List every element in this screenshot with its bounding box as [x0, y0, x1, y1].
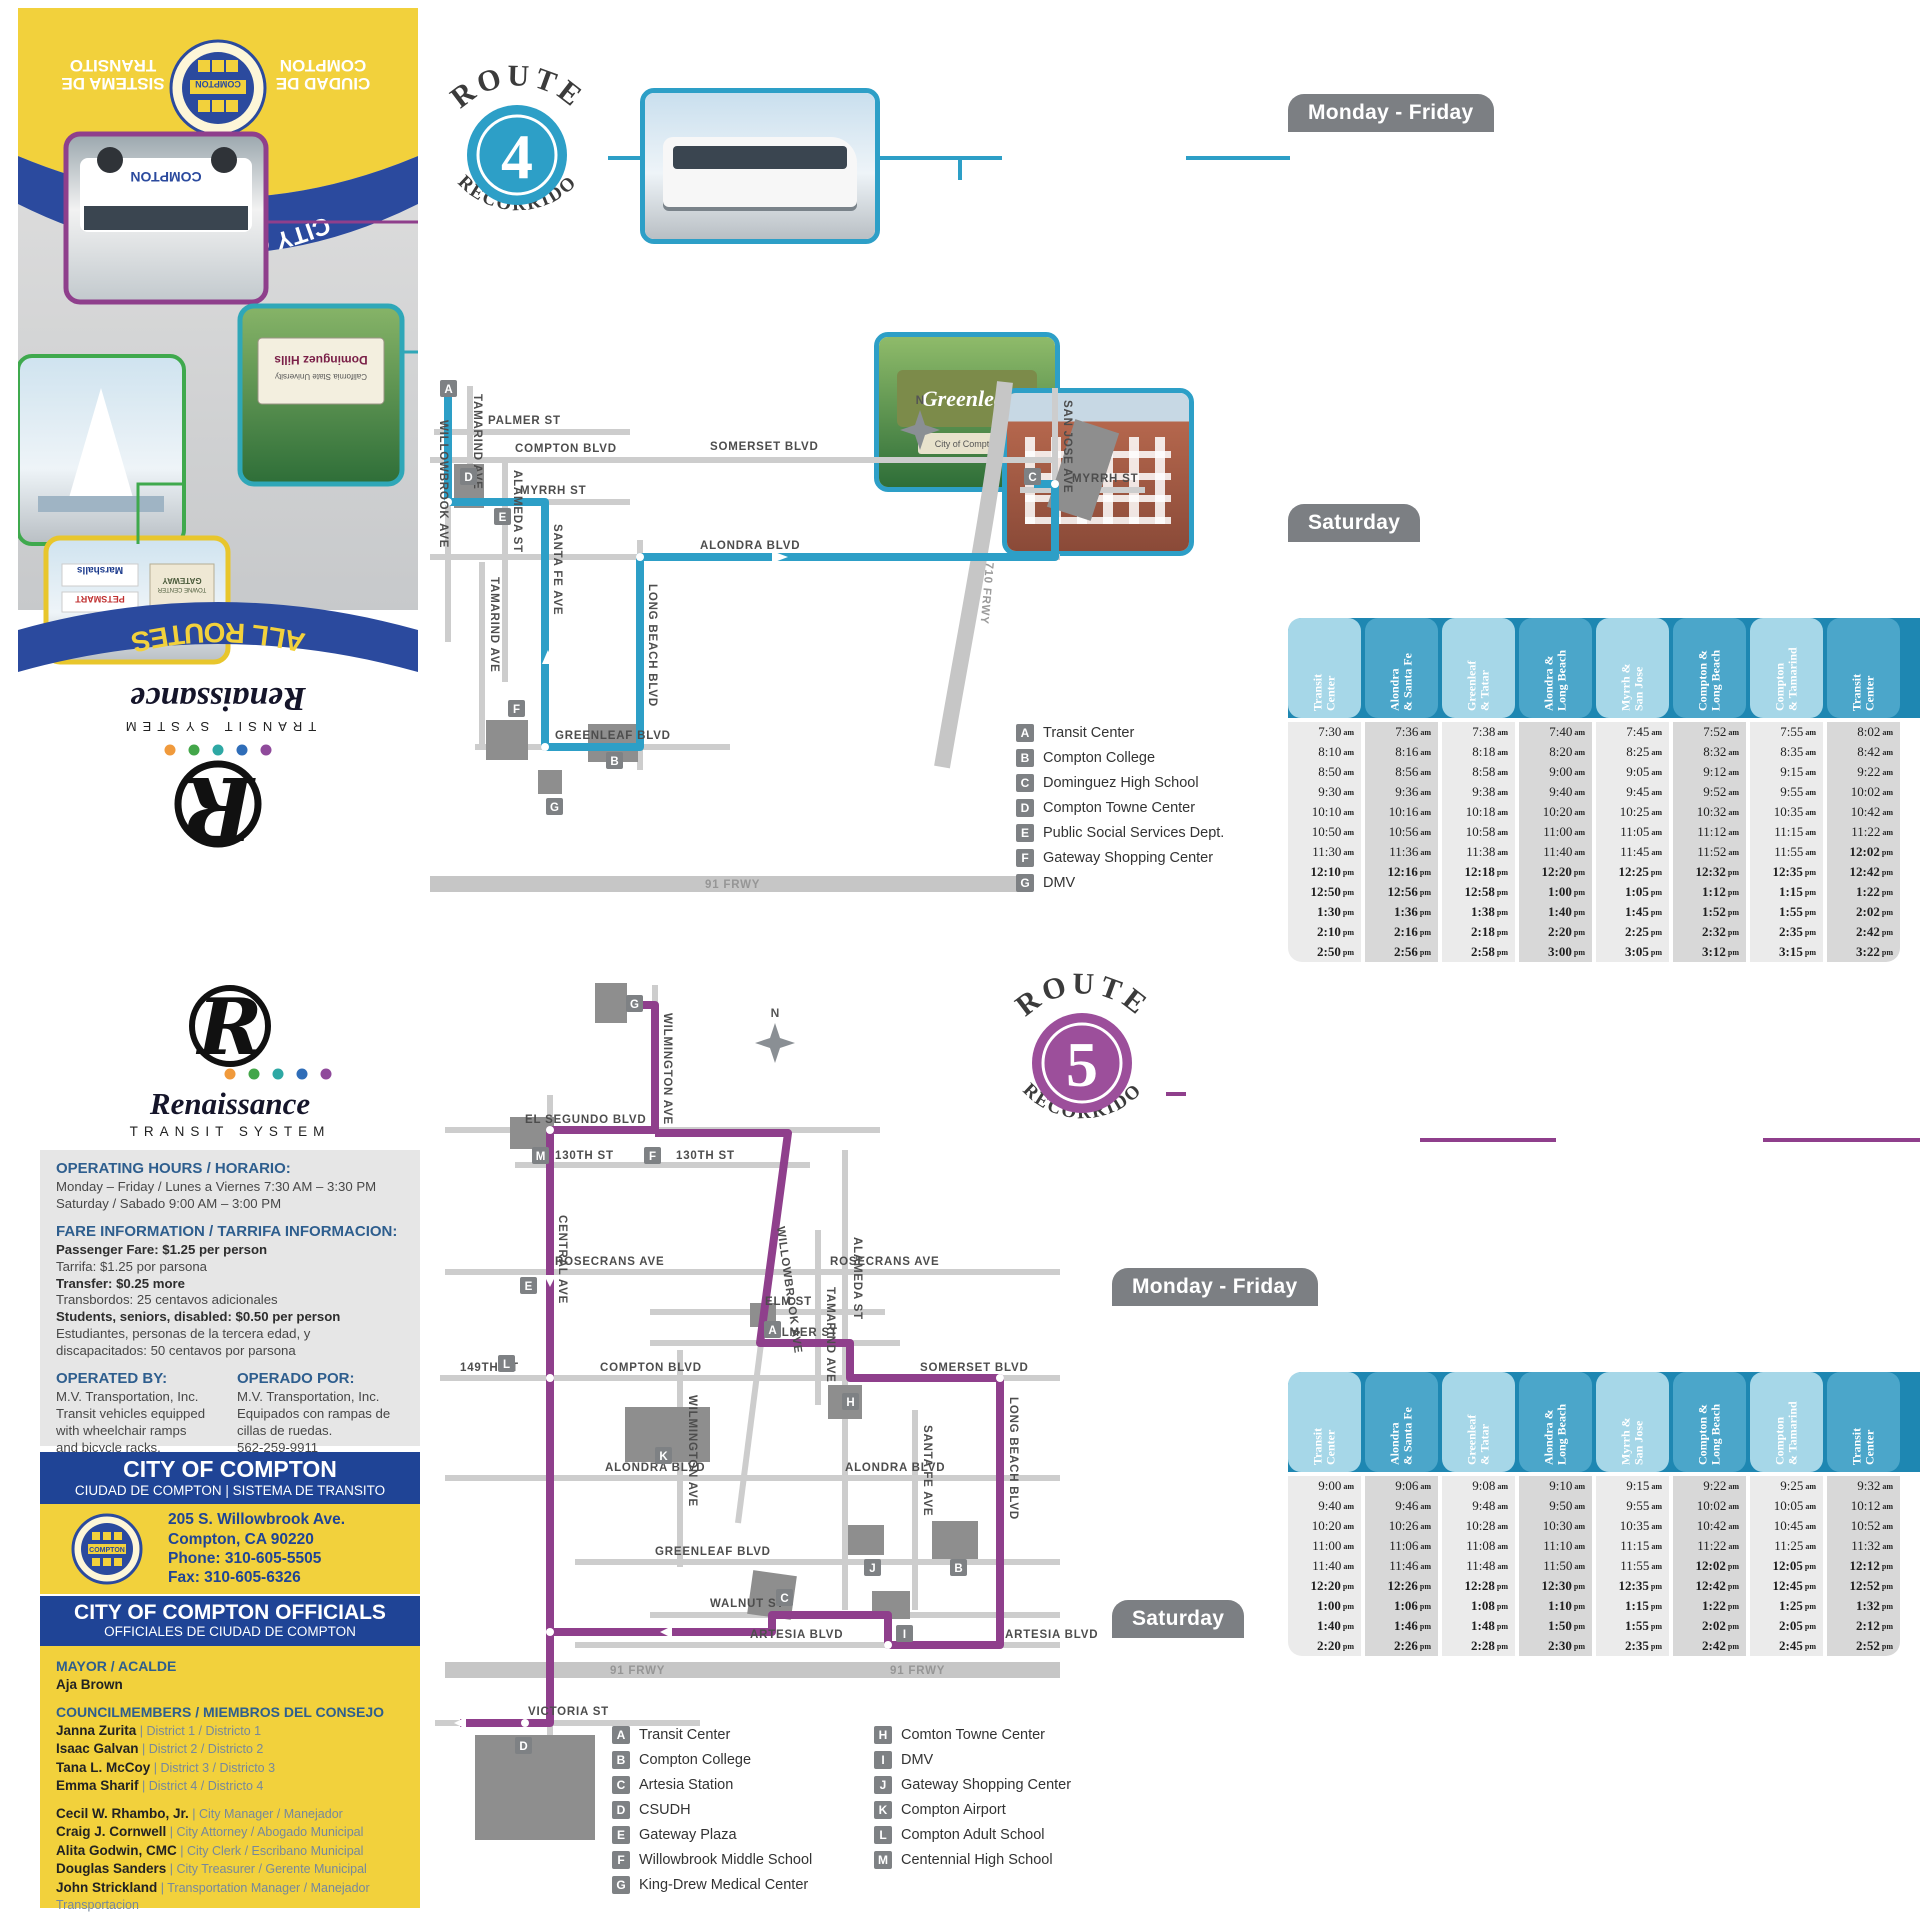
timetable-cell: 10:26am	[1365, 1516, 1438, 1536]
timetable-cell: 1:36pm	[1365, 902, 1438, 922]
time-suffix: pm	[1343, 908, 1354, 917]
time-suffix: am	[1497, 848, 1508, 857]
timetable-cell: 9:36am	[1365, 782, 1438, 802]
timetable-cell: 9:52am	[1673, 782, 1746, 802]
cover-gateway-sign2: TOWNE CENTER	[157, 586, 206, 592]
time-suffix: am	[1805, 828, 1816, 837]
council-list: Janna Zurita | District 1 / Districto 1I…	[56, 1722, 404, 1795]
street-label: SOMERSET BLVD	[710, 441, 819, 453]
street-label: ROSECRANS AVE	[830, 1256, 939, 1268]
legend-item: EGateway Plaza	[612, 1826, 812, 1844]
time-value: 9:08	[1472, 1478, 1495, 1494]
timetable-cell: 9:06am	[1365, 1476, 1438, 1496]
time-value: 9:36	[1395, 784, 1418, 800]
timetable-cell: 11:40am	[1519, 842, 1592, 862]
marker-letter: C	[780, 1593, 788, 1605]
time-value: 8:02	[1857, 724, 1880, 740]
street-label: GREENLEAF BLVD	[655, 1546, 771, 1558]
time-value: 10:42	[1697, 1518, 1727, 1534]
street-label: COMPTON BLVD	[600, 1362, 702, 1374]
stop-header-label: Greenleaf& Tatar	[1465, 621, 1492, 715]
timetable-cell: 12:45pm	[1750, 1576, 1823, 1596]
legend-item: ATransit Center	[612, 1726, 812, 1744]
time-suffix: pm	[1420, 1602, 1431, 1611]
mayor-title: MAYOR / ACALDE	[56, 1658, 404, 1674]
time-suffix: am	[1882, 748, 1893, 757]
time-suffix: pm	[1343, 948, 1354, 957]
time-suffix: pm	[1805, 1562, 1816, 1571]
time-suffix: am	[1420, 748, 1431, 757]
time-suffix: am	[1497, 828, 1508, 837]
time-value: 2:26	[1394, 1638, 1418, 1654]
street-label: SANTA FE AVE	[551, 524, 563, 615]
timetable-cell: 12:25pm	[1596, 862, 1669, 882]
time-value: 11:10	[1543, 1538, 1572, 1554]
stop-header-label: Alondra &Long Beach	[1542, 1375, 1569, 1469]
time-value: 11:40	[1312, 1558, 1341, 1574]
time-suffix: pm	[1497, 948, 1508, 957]
street-label: LONG BEACH BLVD	[646, 584, 658, 707]
official-entry: Tana L. McCoy | District 3 / Districto 3	[56, 1759, 404, 1777]
officials-box: MAYOR / ACALDE Aja Brown COUNCILMEMBERS …	[40, 1646, 420, 1908]
timetable-column-body: 9:00am9:40am10:20am11:00am11:40am12:20pm…	[1288, 1476, 1361, 1656]
timetable-cell: 8:56am	[1365, 762, 1438, 782]
legend-key: G	[612, 1876, 630, 1894]
cover-seal-text: COMPTON	[195, 79, 241, 89]
time-suffix: am	[1497, 1562, 1508, 1571]
time-value: 8:58	[1472, 764, 1495, 780]
marker-letter: F	[649, 1151, 656, 1163]
info-line: Passenger Fare: $1.25 per person	[56, 1242, 404, 1259]
marker-letter: G	[630, 999, 639, 1011]
timetable-cell: 2:02pm	[1673, 1616, 1746, 1636]
timetable-cell: 11:06am	[1365, 1536, 1438, 1556]
time-suffix: am	[1574, 728, 1585, 737]
marker-letter: E	[499, 512, 507, 524]
timetable-cell: 9:05am	[1596, 762, 1669, 782]
time-suffix: pm	[1728, 948, 1739, 957]
info-line: Transbordos: 25 centavos adicionales	[56, 1292, 404, 1309]
street-label: VICTORIA ST	[528, 1706, 609, 1718]
timetable-cell: 12:32pm	[1673, 862, 1746, 882]
route5-saturday-tab-label: Saturday	[1112, 1600, 1244, 1638]
legend-item: GKing-Drew Medical Center	[612, 1876, 812, 1894]
time-value: 12:25	[1619, 864, 1649, 880]
time-suffix: pm	[1420, 868, 1431, 877]
timetable-cell: 10:16am	[1365, 802, 1438, 822]
time-value: 7:55	[1780, 724, 1803, 740]
time-suffix: am	[1574, 1522, 1585, 1531]
timetable-cell: 10:18am	[1442, 802, 1515, 822]
time-value: 2:20	[1548, 924, 1572, 940]
time-suffix: pm	[1651, 1602, 1662, 1611]
timetable-cell: 1:22pm	[1827, 882, 1900, 902]
timetable-cell: 1:40pm	[1288, 1616, 1361, 1636]
time-suffix: am	[1497, 1522, 1508, 1531]
time-suffix: am	[1882, 788, 1893, 797]
cover-photo-fountain	[18, 356, 184, 544]
time-suffix: pm	[1805, 928, 1816, 937]
time-suffix: am	[1882, 808, 1893, 817]
stop-header-label: Myrrh &San Jose	[1619, 1375, 1646, 1469]
time-value: 2:02	[1856, 904, 1880, 920]
time-value: 12:02	[1850, 844, 1880, 860]
stop-header-label: Compton& Tamarind	[1773, 1375, 1800, 1469]
time-value: 1:12	[1702, 884, 1726, 900]
address-line: 205 S. Willowbrook Ave.	[168, 1510, 345, 1529]
time-suffix: pm	[1420, 948, 1431, 957]
time-value: 1:15	[1779, 884, 1803, 900]
timetable-column: TransitCenter9:00am9:40am10:20am11:00am1…	[1288, 1372, 1361, 1656]
time-value: 11:22	[1851, 824, 1880, 840]
time-suffix: am	[1651, 1502, 1662, 1511]
time-suffix: am	[1420, 1502, 1431, 1511]
info-line: Students, seniors, disabled: $0.50 per p…	[56, 1309, 404, 1326]
timetable-cell: 12:16pm	[1365, 862, 1438, 882]
stop-header-label: Alondra &Long Beach	[1542, 621, 1569, 715]
time-value: 2:12	[1856, 1618, 1880, 1634]
timetable-column: Compton& Tamarind9:25am10:05am10:45am11:…	[1750, 1372, 1823, 1656]
timetable-cell: 7:40am	[1519, 722, 1592, 742]
time-suffix: am	[1882, 828, 1893, 837]
timetable-cell: 12:35pm	[1596, 1576, 1669, 1596]
legend-label: DMV	[1034, 875, 1075, 891]
time-value: 2:16	[1394, 924, 1418, 940]
marker-letter: K	[659, 1451, 668, 1463]
legend-label: Compton College	[630, 1752, 751, 1768]
timetable-cell: 9:48am	[1442, 1496, 1515, 1516]
legend-label: DMV	[892, 1752, 933, 1768]
timetable-cell: 10:45am	[1750, 1516, 1823, 1536]
timetable-cell: 2:35pm	[1596, 1636, 1669, 1656]
timetable-cell: 12:28pm	[1442, 1576, 1515, 1596]
brand-dot	[249, 1069, 260, 1080]
timetable-cell: 3:12pm	[1673, 942, 1746, 962]
info-line: Tarrifa: $1.25 por parsona	[56, 1259, 404, 1276]
timetable-cell: 11:22am	[1673, 1536, 1746, 1556]
timetable-cell: 2:12pm	[1827, 1616, 1900, 1636]
time-value: 7:40	[1549, 724, 1572, 740]
hours-title: OPERATING HOURS / HORARIO:	[56, 1160, 404, 1177]
time-value: 3:15	[1779, 944, 1803, 960]
time-value: 12:50	[1311, 884, 1341, 900]
stop-header: Compton &Long Beach	[1673, 618, 1746, 718]
time-value: 11:08	[1466, 1538, 1495, 1554]
hours-line2: Saturday / Sabado 9:00 AM – 3:00 PM	[56, 1196, 404, 1213]
route4-saturday-tab: Saturday	[1288, 504, 1420, 542]
time-suffix: pm	[1497, 888, 1508, 897]
official-entry: Emma Sharif | District 4 / Districto 4	[56, 1777, 404, 1795]
timetable-cell: 12:20pm	[1288, 1576, 1361, 1596]
time-suffix: am	[1497, 1542, 1508, 1551]
time-value: 9:25	[1780, 1478, 1803, 1494]
timetable-cell: 10:56am	[1365, 822, 1438, 842]
timetable-cell: 3:00pm	[1519, 942, 1592, 962]
legend-item: DCSUDH	[612, 1801, 812, 1819]
freeway-710	[942, 382, 1005, 767]
official-entry: Alita Godwin, CMC | City Clerk / Escriba…	[56, 1842, 404, 1860]
time-value: 12:52	[1850, 1578, 1880, 1594]
time-value: 10:45	[1774, 1518, 1804, 1534]
timetable-cell: 9:25am	[1750, 1476, 1823, 1496]
time-suffix: pm	[1497, 908, 1508, 917]
time-suffix: pm	[1574, 1602, 1585, 1611]
time-suffix: am	[1805, 768, 1816, 777]
stop-header-label: Compton &Long Beach	[1696, 621, 1723, 715]
time-suffix: am	[1574, 808, 1585, 817]
legend-key: D	[612, 1801, 630, 1819]
timetable-cell: 2:18pm	[1442, 922, 1515, 942]
cover-brand-sub: TRANSIT SYSTEM	[120, 719, 316, 734]
timetable-column-body: 7:36am8:16am8:56am9:36am10:16am10:56am11…	[1365, 722, 1438, 962]
time-value: 2:35	[1625, 1638, 1649, 1654]
street-label: SANTA FE AVE	[921, 1425, 933, 1516]
time-value: 7:30	[1318, 724, 1341, 740]
marker-letter: G	[550, 802, 559, 814]
address-line: Compton, CA 90220	[168, 1530, 345, 1549]
timetable-cell: 11:15am	[1596, 1536, 1669, 1556]
time-suffix: am	[1728, 848, 1739, 857]
timetable-cell: 9:45am	[1596, 782, 1669, 802]
street-label: ROSECRANS AVE	[555, 1256, 664, 1268]
cover-city-line2: COMPTON	[280, 56, 367, 75]
timetable-cell: 12:12pm	[1827, 1556, 1900, 1576]
time-suffix: pm	[1343, 1602, 1354, 1611]
route4-badge-number: 4	[501, 121, 533, 192]
timetable-cell: 7:30am	[1288, 722, 1361, 742]
stop-header: Compton& Tamarind	[1750, 618, 1823, 718]
cover-csudh-sign1: Dominguez Hills	[274, 353, 368, 367]
timetable-cell: 12:42pm	[1827, 862, 1900, 882]
time-value: 11:32	[1851, 1538, 1880, 1554]
time-value: 1:40	[1548, 904, 1572, 920]
timetable-cell: 10:02am	[1827, 782, 1900, 802]
cover-shop2-text: PETSMART	[75, 594, 125, 604]
legend-label: King-Drew Medical Center	[630, 1877, 808, 1893]
time-value: 1:05	[1625, 884, 1649, 900]
time-suffix: am	[1651, 828, 1662, 837]
stop-header-label: TransitCenter	[1311, 621, 1338, 715]
time-suffix: pm	[1805, 888, 1816, 897]
timetable-column-body: 7:55am8:35am9:15am9:55am10:35am11:15am11…	[1750, 722, 1823, 962]
time-suffix: am	[1728, 1522, 1739, 1531]
time-suffix: pm	[1574, 1642, 1585, 1651]
timetable-cell: 1:48pm	[1442, 1616, 1515, 1636]
time-suffix: am	[1497, 788, 1508, 797]
timetable-cell: 2:32pm	[1673, 922, 1746, 942]
time-value: 10:58	[1466, 824, 1496, 840]
marker-letter: L	[503, 1359, 510, 1371]
time-suffix: pm	[1420, 1582, 1431, 1591]
time-value: 9:40	[1318, 1498, 1341, 1514]
timetable-cell: 10:20am	[1288, 1516, 1361, 1536]
time-value: 11:06	[1389, 1538, 1418, 1554]
freeway-label: 91 FRWY	[705, 879, 760, 891]
time-value: 1:22	[1702, 1598, 1726, 1614]
legend-label: Compton Adult School	[892, 1827, 1044, 1843]
timetable-column-body: 9:32am10:12am10:52am11:32am12:12pm12:52p…	[1827, 1476, 1900, 1656]
time-suffix: am	[1651, 748, 1662, 757]
route4-photo-bus	[640, 88, 880, 244]
timetable-cell: 2:35pm	[1750, 922, 1823, 942]
time-value: 11:52	[1697, 844, 1726, 860]
legend-label: Centennial High School	[892, 1852, 1053, 1868]
timetable-cell: 2:56pm	[1365, 942, 1438, 962]
timetable-cell: 9:40am	[1288, 1496, 1361, 1516]
time-suffix: pm	[1574, 868, 1585, 877]
cover-system-line1: SISTEMA DE	[61, 74, 164, 93]
legend-item: KCompton Airport	[874, 1801, 1071, 1819]
timetable-cell: 7:45am	[1596, 722, 1669, 742]
time-value: 10:28	[1466, 1518, 1496, 1534]
timetable-cell: 11:00am	[1519, 822, 1592, 842]
timetable-cell: 11:45am	[1596, 842, 1669, 862]
timetable-cell: 12:30pm	[1519, 1576, 1592, 1596]
legend-key: C	[1016, 774, 1034, 792]
legend-item: HComton Towne Center	[874, 1726, 1071, 1744]
marker-letter: D	[464, 472, 472, 484]
time-suffix: pm	[1420, 1622, 1431, 1631]
time-suffix: pm	[1343, 1642, 1354, 1651]
time-value: 10:12	[1851, 1498, 1881, 1514]
info-line: M.V. Transportation, Inc.	[56, 1389, 223, 1406]
stop-header-label: Compton &Long Beach	[1696, 1375, 1723, 1469]
timetable-cell: 3:05pm	[1596, 942, 1669, 962]
timetable-cell: 2:02pm	[1827, 902, 1900, 922]
timetable-cell: 9:12am	[1673, 762, 1746, 782]
timetable-column: Compton &Long Beach9:22am10:02am10:42am1…	[1673, 1372, 1746, 1656]
time-suffix: am	[1805, 788, 1816, 797]
timetable-cell: 12:02pm	[1827, 842, 1900, 862]
time-value: 9:15	[1780, 764, 1803, 780]
time-suffix: am	[1651, 808, 1662, 817]
time-suffix: pm	[1420, 888, 1431, 897]
time-suffix: am	[1728, 748, 1739, 757]
time-value: 11:25	[1774, 1538, 1803, 1554]
timetable-cell: 10:42am	[1673, 1516, 1746, 1536]
timetable-cell: 9:00am	[1288, 1476, 1361, 1496]
time-value: 2:35	[1779, 924, 1803, 940]
fare-title: FARE INFORMATION / TARRIFA INFORMACION:	[56, 1223, 404, 1240]
timetable-cell: 11:55am	[1596, 1556, 1669, 1576]
officials-banner-sub: OFFICIALES DE CIUDAD DE COMPTON	[40, 1624, 420, 1640]
timetable-cell: 10:35am	[1750, 802, 1823, 822]
brand-dot	[273, 1069, 284, 1080]
time-value: 9:06	[1395, 1478, 1418, 1494]
timetable-cell: 1:06pm	[1365, 1596, 1438, 1616]
time-suffix: am	[1882, 1522, 1893, 1531]
legend-label: Gateway Shopping Center	[892, 1777, 1071, 1793]
timetable-cell: 7:52am	[1673, 722, 1746, 742]
time-value: 2:05	[1779, 1618, 1803, 1634]
time-value: 2:30	[1548, 1638, 1572, 1654]
time-suffix: am	[1343, 748, 1354, 757]
route5-legend-col1: ATransit CenterBCompton CollegeCArtesia …	[612, 1726, 812, 1901]
timetable-column-body: 8:02am8:42am9:22am10:02am10:42am11:22am1…	[1827, 722, 1900, 962]
info-line: Transfer: $0.25 more	[56, 1276, 404, 1293]
logo-sub: TRANSIT SYSTEM	[130, 1124, 331, 1139]
stop-header: Greenleaf& Tatar	[1442, 1372, 1515, 1472]
time-value: 10:30	[1543, 1518, 1573, 1534]
time-suffix: am	[1343, 828, 1354, 837]
time-suffix: am	[1574, 788, 1585, 797]
timetable-cell: 2:16pm	[1365, 922, 1438, 942]
stop-header-label: TransitCenter	[1850, 1375, 1877, 1469]
brand-dot	[321, 1069, 332, 1080]
time-suffix: am	[1343, 1562, 1354, 1571]
legend-item: FWillowbrook Middle School	[612, 1851, 812, 1869]
time-value: 11:46	[1389, 1558, 1418, 1574]
time-value: 12:56	[1388, 884, 1418, 900]
time-value: 1:30	[1317, 904, 1341, 920]
officials-banner: CITY OF COMPTON OFFICIALS OFFICIALES DE …	[40, 1596, 420, 1646]
legend-label: CSUDH	[630, 1802, 691, 1818]
time-value: 10:20	[1543, 804, 1573, 820]
timetable-cell: 10:12am	[1827, 1496, 1900, 1516]
time-suffix: pm	[1651, 1642, 1662, 1651]
time-value: 12:12	[1850, 1558, 1880, 1574]
city-banner-sub: CIUDAD DE COMPTON | SISTEMA DE TRANSITO	[40, 1483, 420, 1499]
address-line: Phone: 310-605-5505	[168, 1549, 345, 1568]
route5-saturday-tab: Saturday	[1112, 1600, 1244, 1638]
timetable-cell: 1:08pm	[1442, 1596, 1515, 1616]
time-value: 9:22	[1857, 764, 1880, 780]
timetable-cell: 12:26pm	[1365, 1576, 1438, 1596]
timetable-cell: 9:22am	[1673, 1476, 1746, 1496]
time-suffix: am	[1728, 1482, 1739, 1491]
timetable-cell: 11:40am	[1288, 1556, 1361, 1576]
time-value: 11:45	[1620, 844, 1649, 860]
stop-header-label: Alondra& Santa Fe	[1388, 621, 1415, 715]
time-suffix: am	[1574, 748, 1585, 757]
time-value: 9:55	[1780, 784, 1803, 800]
info-line: Transit vehicles equipped	[56, 1406, 223, 1423]
time-suffix: am	[1805, 1542, 1816, 1551]
logo-name: Renaissance	[149, 1086, 310, 1121]
timetable-cell: 1:45pm	[1596, 902, 1669, 922]
time-value: 11:22	[1697, 1538, 1726, 1554]
time-suffix: am	[1574, 768, 1585, 777]
timetable-column: TransitCenter7:30am8:10am8:50am9:30am10:…	[1288, 618, 1361, 962]
legend-item: BCompton College	[612, 1751, 812, 1769]
marker-letter: A	[768, 1325, 776, 1337]
street-label: TAMARIND AVE	[488, 577, 500, 673]
time-suffix: am	[1651, 728, 1662, 737]
timetable-column-body: 7:45am8:25am9:05am9:45am10:25am11:05am11…	[1596, 722, 1669, 962]
time-value: 3:05	[1625, 944, 1649, 960]
time-suffix: pm	[1574, 1582, 1585, 1591]
time-value: 1:36	[1394, 904, 1418, 920]
time-value: 12:10	[1311, 864, 1341, 880]
timetable-cell: 1:10pm	[1519, 1596, 1592, 1616]
timetable-cell: 9:30am	[1288, 782, 1361, 802]
mayor-name: Aja Brown	[56, 1677, 123, 1692]
time-value: 8:16	[1395, 744, 1418, 760]
street-label: GREENLEAF BLVD	[555, 730, 671, 742]
timetable-cell: 9:55am	[1596, 1496, 1669, 1516]
timetable-cell: 1:52pm	[1673, 902, 1746, 922]
stop-header: Alondra& Santa Fe	[1365, 618, 1438, 718]
time-value: 3:22	[1856, 944, 1880, 960]
time-suffix: am	[1728, 728, 1739, 737]
brand-dot	[189, 745, 200, 756]
stop-header: Alondra& Santa Fe	[1365, 1372, 1438, 1472]
time-value: 11:50	[1543, 1558, 1572, 1574]
time-suffix: am	[1497, 768, 1508, 777]
stop-header: Greenleaf& Tatar	[1442, 618, 1515, 718]
time-suffix: pm	[1728, 888, 1739, 897]
time-value: 8:20	[1549, 744, 1572, 760]
